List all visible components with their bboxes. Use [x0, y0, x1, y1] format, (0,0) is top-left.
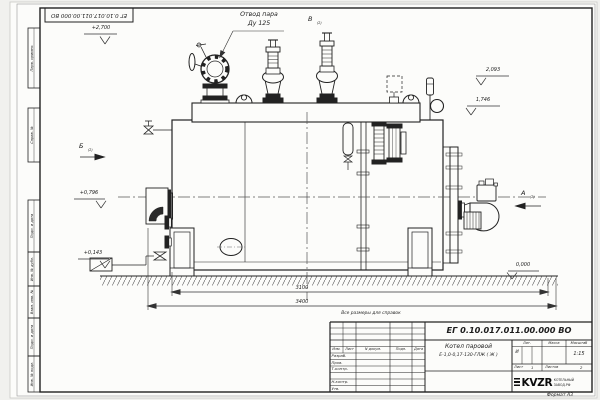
callout-steam-line2: Ду 125: [230, 21, 288, 27]
col-list: Лист: [343, 348, 356, 352]
elevation-label-0143: +0,143: [76, 251, 110, 256]
col-podp: Подп.: [390, 348, 412, 352]
company-subtitle: КОТЕЛЬНЫЙ ЗАВОД.РФ: [554, 378, 574, 387]
sheets-label: Листов: [545, 366, 558, 370]
title-product-name: Котел паровой: [426, 344, 511, 350]
company-subtitle-line1: КОТЕЛЬНЫЙ: [554, 378, 574, 382]
steam-drum: [192, 103, 420, 122]
view-label-v-sub: (2): [317, 22, 322, 25]
margin-label-podp-data-2: Подп. и дата: [30, 325, 34, 349]
callout-steam-line1: Отвод пара: [230, 12, 288, 18]
drawing-sheet: ЕГ 0.10.017.011.00.000 ВО Перв. примен. …: [0, 0, 600, 400]
dimension-label-3100: 3100: [284, 286, 320, 291]
lit-value: И: [512, 351, 522, 356]
row-tkontr: Т.контр.: [332, 367, 348, 371]
massa-header: Масса: [542, 342, 566, 346]
margin-label-podp-data-1: Подп. и дата: [30, 214, 34, 238]
elevation-label-0796: +0,796: [72, 191, 106, 196]
col-doc: N докум.: [356, 348, 390, 352]
margin-label-perv-primen: Перв. примен.: [30, 45, 34, 72]
sheet-label: Лист: [514, 366, 523, 370]
company-logo: KVZR КОТЕЛЬНЫЙ ЗАВОД.РФ: [514, 374, 592, 391]
view-label-a-sub: (2): [530, 196, 535, 199]
row-razrab: Разраб.: [332, 354, 347, 358]
row-utv: Утв.: [332, 387, 340, 391]
margin-label-inv-dubl: Инв. № дубл.: [30, 257, 34, 282]
company-subtitle-line2: ЗАВОД.РФ: [554, 383, 574, 387]
margin-label-sprav-no: Справ. №: [30, 126, 34, 143]
row-nkontr: Н.контр.: [332, 380, 349, 384]
ground: [100, 276, 558, 286]
elevation-label-2700: +2,700: [84, 26, 118, 31]
col-izm: Изм.: [330, 348, 343, 352]
row-prov: Пров.: [332, 361, 343, 365]
scale-value: 1:15: [566, 352, 592, 357]
view-label-b-sub: (2): [88, 149, 93, 152]
sheet-value: 1: [531, 366, 533, 370]
view-label-a: А: [521, 190, 525, 197]
elevation-label-1746: 1,746: [466, 98, 500, 103]
col-data: Дата: [412, 348, 425, 352]
title-product-model: Е-1,0-0,17-130-ГЛЖ ( Ж ): [426, 354, 511, 359]
scale-header: Масштаб: [566, 342, 592, 346]
view-label-v: В: [308, 16, 312, 23]
kvzr-logo-mark-icon: [514, 378, 520, 387]
view-label-b: Б: [79, 143, 83, 150]
drawing-canvas: [0, 0, 600, 400]
reference-note: Все размеры для справок: [340, 312, 402, 316]
margin-label-inv-podl: Инв. № подл.: [30, 362, 34, 387]
title-doc-number: ЕГ 0.10.017.011.00.000 ВО: [428, 326, 590, 334]
margin-label-vzam-inv: Взам. инв. №: [30, 290, 34, 314]
dimension-label-3400: 3400: [284, 300, 320, 305]
sheets-value: 2: [580, 366, 582, 370]
top-stamp-doc-number: ЕГ 0.10.017.011.00.000 ВО: [45, 8, 133, 22]
elevation-label-zero: 0,000: [506, 263, 540, 268]
elevation-label-2093: 2,093: [476, 68, 510, 73]
lit-header: Лит.: [512, 342, 542, 346]
format-note: Формат А3: [530, 394, 590, 399]
kvzr-logo-text: KVZR: [522, 377, 553, 389]
